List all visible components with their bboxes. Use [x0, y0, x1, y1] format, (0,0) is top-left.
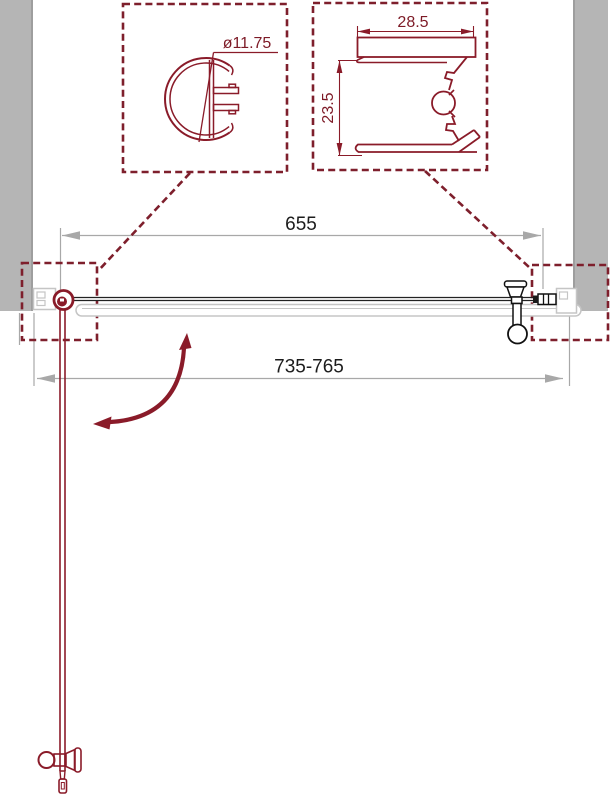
- profile-width-label: 28.5: [397, 14, 428, 31]
- drawing-canvas: 655 735-765 ø11.75: [0, 0, 611, 800]
- right-wall-profile: [557, 289, 577, 314]
- detail-callout-knob-profile: ø11.75: [123, 4, 287, 172]
- dim-arrow-left: [62, 231, 80, 239]
- leader-line-left: [98, 173, 190, 271]
- door-open-position: [39, 309, 82, 793]
- detail-callout-wall-profile: 28.5 23.5: [313, 3, 487, 170]
- dim-arrow-right: [545, 374, 563, 382]
- dim-arrow-left: [37, 374, 55, 382]
- glass-panel: [72, 298, 556, 301]
- shower-door-technical-drawing: 655 735-765 ø11.75: [0, 0, 611, 800]
- dimension-glass-width: 655: [61, 214, 544, 293]
- wall-clamp-bracket: [533, 294, 556, 305]
- leader-line-right: [425, 171, 530, 268]
- left-wall-profile: [34, 289, 56, 310]
- bottom-rail: [76, 305, 581, 317]
- door-bottom-cap: [59, 771, 67, 793]
- handle-grip-ring: [508, 325, 527, 344]
- detail-frame: [123, 4, 287, 172]
- knob-diameter-label: ø11.75: [223, 35, 272, 52]
- overall-width-label: 735-765: [274, 357, 344, 378]
- swing-direction-arrow: [93, 333, 192, 430]
- left-wall: [0, 0, 33, 311]
- dimension-overall-width: 735-765: [20, 313, 570, 386]
- dim-arrow-right: [523, 231, 541, 239]
- diameter-leader: [199, 53, 214, 143]
- glass-width-label: 655: [285, 214, 317, 235]
- profile-depth-label: 23.5: [320, 92, 337, 123]
- pivot-hinge: [54, 291, 73, 310]
